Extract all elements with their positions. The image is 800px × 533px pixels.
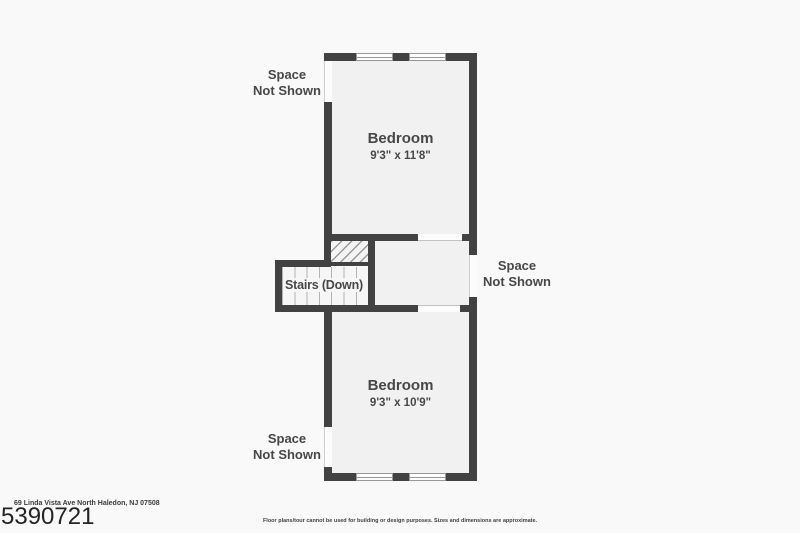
bottom-bedroom-label: Bedroom 9'3" x 10'9" bbox=[332, 377, 469, 409]
opening-bedroom1 bbox=[418, 234, 462, 241]
hall-floor bbox=[375, 241, 469, 305]
window-icon bbox=[409, 53, 446, 61]
wall-left-lower bbox=[324, 312, 332, 427]
space-not-shown-label-right: Space Not Shown bbox=[467, 258, 567, 289]
wall-right-lower bbox=[469, 297, 477, 481]
disclaimer-text: Floor plans/tour cannot be used for buil… bbox=[150, 518, 650, 524]
stairs-label-text: Stairs (Down) bbox=[284, 278, 364, 292]
top-bedroom-dimensions: 9'3" x 11'8" bbox=[332, 150, 469, 162]
bottom-bedroom-dimensions: 9'3" x 10'9" bbox=[332, 397, 469, 409]
stairs-label: Stairs (Down) bbox=[276, 278, 372, 292]
wall-left-corner bbox=[324, 467, 332, 481]
window-icon bbox=[409, 473, 446, 481]
hatch-pattern bbox=[331, 241, 368, 262]
top-bedroom-label: Bedroom 9'3" x 11'8" bbox=[332, 130, 469, 162]
hatched-area bbox=[327, 237, 372, 266]
wall-stairs-top bbox=[275, 260, 331, 267]
space-not-shown-label-bottom-left: Space Not Shown bbox=[237, 431, 337, 462]
wall-bedroom1-hall-right bbox=[462, 234, 477, 241]
floorplan-canvas: Space Not Shown Space Not Shown Space No… bbox=[0, 0, 800, 533]
bottom-bedroom-name: Bedroom bbox=[332, 377, 469, 394]
wall-hall-bedroom2-left bbox=[275, 305, 418, 312]
wall-hall-bedroom2-right bbox=[460, 305, 477, 312]
wall-bottom bbox=[324, 473, 477, 481]
window-icon bbox=[356, 473, 393, 481]
top-bedroom-name: Bedroom bbox=[332, 130, 469, 147]
wall-top bbox=[324, 53, 477, 61]
window-icon bbox=[356, 53, 393, 61]
listing-id: 5390721 bbox=[1, 505, 94, 529]
wall-right-upper bbox=[469, 53, 477, 255]
opening-bedroom2 bbox=[418, 305, 460, 312]
space-not-shown-label-top-left: Space Not Shown bbox=[237, 67, 337, 98]
